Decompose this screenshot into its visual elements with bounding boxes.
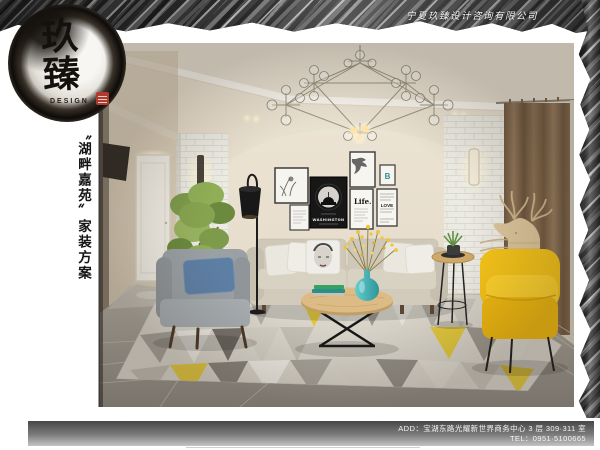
ink-brush-right-strip (576, 0, 600, 418)
botanical-print (275, 168, 308, 203)
ink-circle-logo: 玖臻 DESIGN (8, 4, 126, 122)
love-title: LOVE (381, 203, 394, 208)
presentation-board: 宁夏玖臻设计咨询有限公司 玖臻 DESIGN 〝湖畔嘉苑〞家装方案 (0, 0, 600, 450)
footer-divider-line (186, 447, 420, 448)
blue-pillow (183, 257, 235, 294)
text-print (290, 205, 309, 230)
wall-sconce-right (469, 149, 479, 185)
lamp-shade (239, 189, 261, 217)
washington-title: WASHINGTON (313, 218, 345, 222)
monogram-print: B (380, 165, 395, 185)
wall-art-dark (103, 143, 130, 181)
life-title: Life. (354, 197, 371, 206)
books (312, 285, 345, 296)
footer-telephone: TEL：0951·5100665 (510, 434, 586, 444)
company-name: 宁夏玖臻设计咨询有限公司 (406, 8, 538, 22)
life-print: Life. (350, 189, 373, 229)
love-print: LOVE (377, 189, 397, 226)
washington-poster: WASHINGTON (310, 177, 347, 228)
project-title-vertical: 〝湖畔嘉苑〞家装方案 (73, 126, 93, 296)
red-seal-stamp (96, 92, 109, 105)
footer-bar: ADD：宝湖东路光耀新世界商务中心 3 层 309·311 室 TEL：0951… (28, 421, 594, 446)
footer-address: ADD：宝湖东路光耀新世界商务中心 3 层 309·311 室 (398, 424, 586, 434)
face-print-pillow (306, 240, 340, 274)
logo-calligraphy: 玖臻 (40, 17, 84, 94)
monogram-letter: B (385, 172, 391, 181)
eagle-print (350, 152, 375, 187)
door-handle (165, 222, 167, 224)
logo-design-label: DESIGN (50, 98, 89, 105)
interior-rendering: WASHINGTON Life. B LOVE (100, 43, 574, 407)
